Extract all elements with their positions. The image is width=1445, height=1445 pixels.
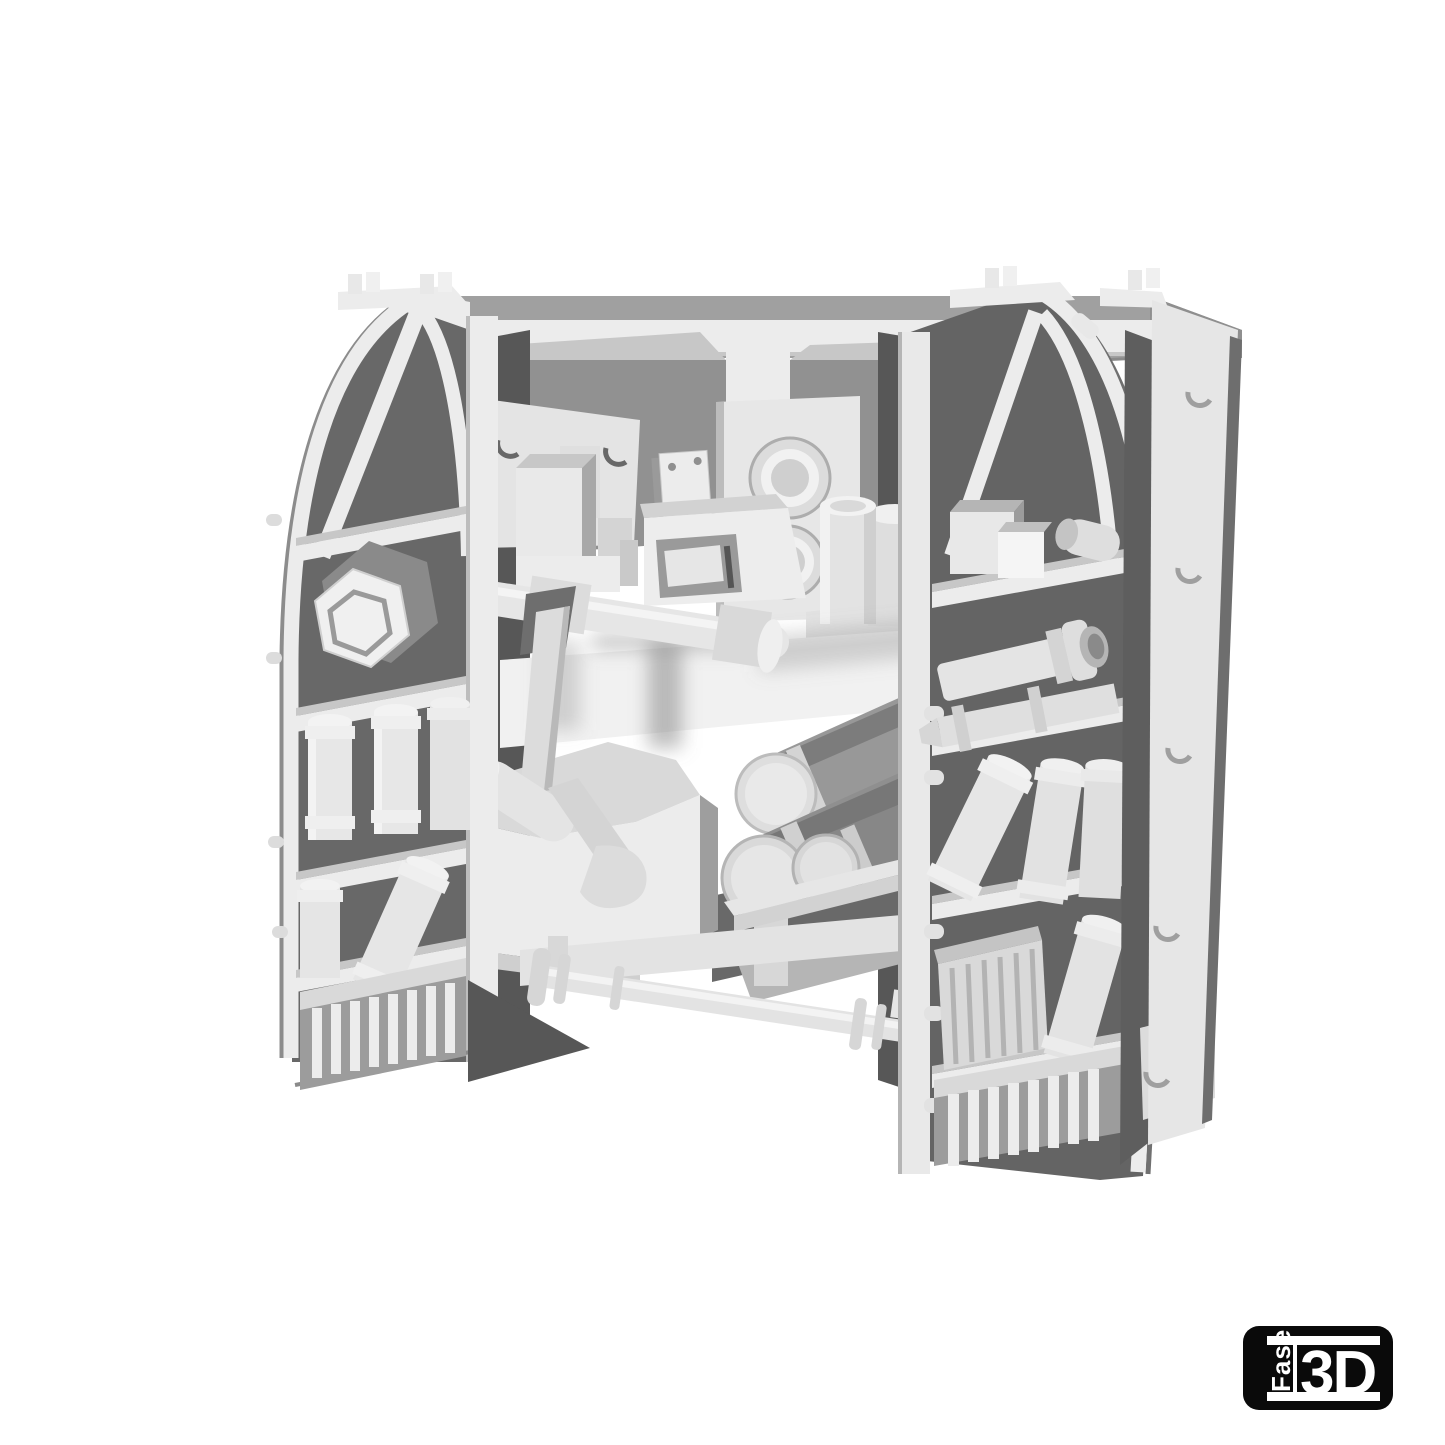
switch-box [640,494,806,606]
render-canvas: Fase 3D [0,0,1445,1445]
logo-vertical-text: Fase [1266,1329,1296,1392]
model-render: Fase 3D [0,0,1445,1445]
brand-logo: Fase 3D [1243,1326,1393,1410]
right-side-wall [1120,300,1242,1165]
logo-main-text: 3D [1300,1339,1375,1408]
left-unit-pegs [338,272,468,310]
left-canisters [305,697,473,840]
